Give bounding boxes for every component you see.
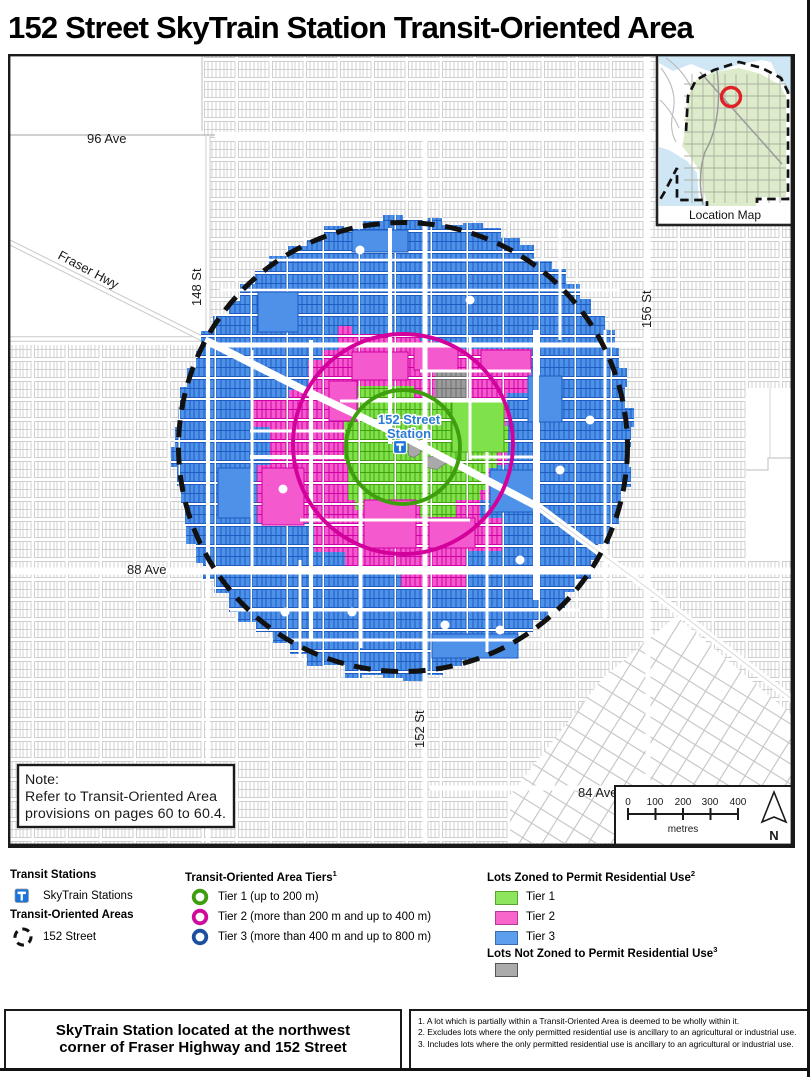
svg-text:96 Ave: 96 Ave bbox=[87, 131, 127, 146]
svg-text:152 St: 152 St bbox=[412, 710, 427, 748]
svg-text:200: 200 bbox=[675, 797, 692, 808]
svg-text:300: 300 bbox=[702, 797, 719, 808]
svg-text:Note:: Note: bbox=[25, 772, 59, 788]
svg-text:156 St: 156 St bbox=[639, 290, 654, 328]
svg-text:metres: metres bbox=[668, 824, 699, 835]
svg-text:N: N bbox=[769, 828, 778, 843]
svg-text:Station: Station bbox=[387, 426, 431, 441]
svg-text:88 Ave: 88 Ave bbox=[127, 562, 167, 577]
svg-text:148 St: 148 St bbox=[189, 268, 204, 306]
svg-text:84 Ave: 84 Ave bbox=[578, 785, 618, 800]
svg-text:0: 0 bbox=[625, 797, 631, 808]
svg-text:provisions on pages 60 to 60.4: provisions on pages 60 to 60.4. bbox=[25, 806, 226, 822]
svg-text:400: 400 bbox=[730, 797, 747, 808]
svg-text:100: 100 bbox=[647, 797, 664, 808]
svg-text:152 Street: 152 Street bbox=[378, 412, 441, 427]
svg-text:Refer to Transit-Oriented Area: Refer to Transit-Oriented Area bbox=[25, 789, 217, 805]
svg-text:Location Map: Location Map bbox=[689, 208, 761, 222]
